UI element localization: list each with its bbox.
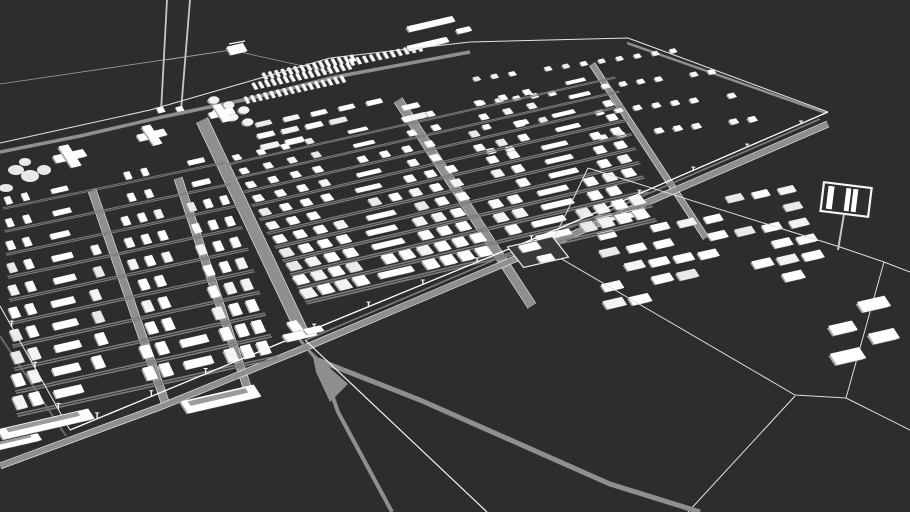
billboard-sign [820,182,871,217]
ground-plane [0,0,910,512]
model-viewport[interactable] [0,0,910,512]
scene-svg [0,0,910,512]
